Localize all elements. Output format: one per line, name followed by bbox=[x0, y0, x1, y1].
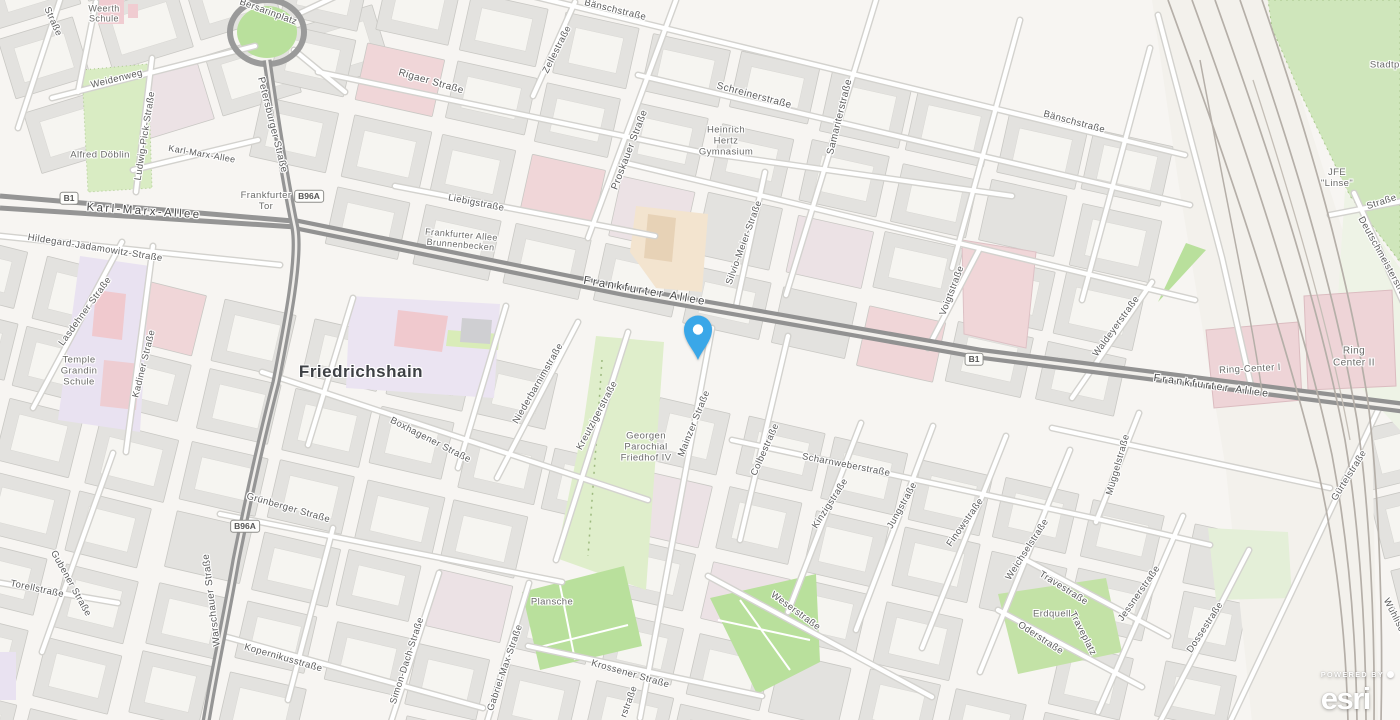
map-canvas[interactable]: WeidenwegLudwig-Pick-StraßeKarl-Marx-All… bbox=[0, 0, 1400, 720]
campus-building-2 bbox=[460, 318, 492, 344]
globe-icon bbox=[1387, 671, 1394, 678]
green-block bbox=[1208, 528, 1292, 600]
small-campus bbox=[0, 652, 16, 700]
pin-hole bbox=[693, 324, 703, 334]
weerth-schule-building bbox=[98, 0, 124, 24]
small-building bbox=[128, 4, 138, 18]
esri-attribution: POWERED BY esri bbox=[1321, 667, 1394, 714]
powered-by-text: POWERED BY bbox=[1321, 671, 1384, 679]
campus-building bbox=[394, 310, 448, 352]
esri-logo: esri bbox=[1321, 683, 1394, 714]
school-building bbox=[92, 290, 126, 340]
location-pin[interactable] bbox=[682, 314, 714, 362]
pin-body bbox=[684, 316, 712, 361]
